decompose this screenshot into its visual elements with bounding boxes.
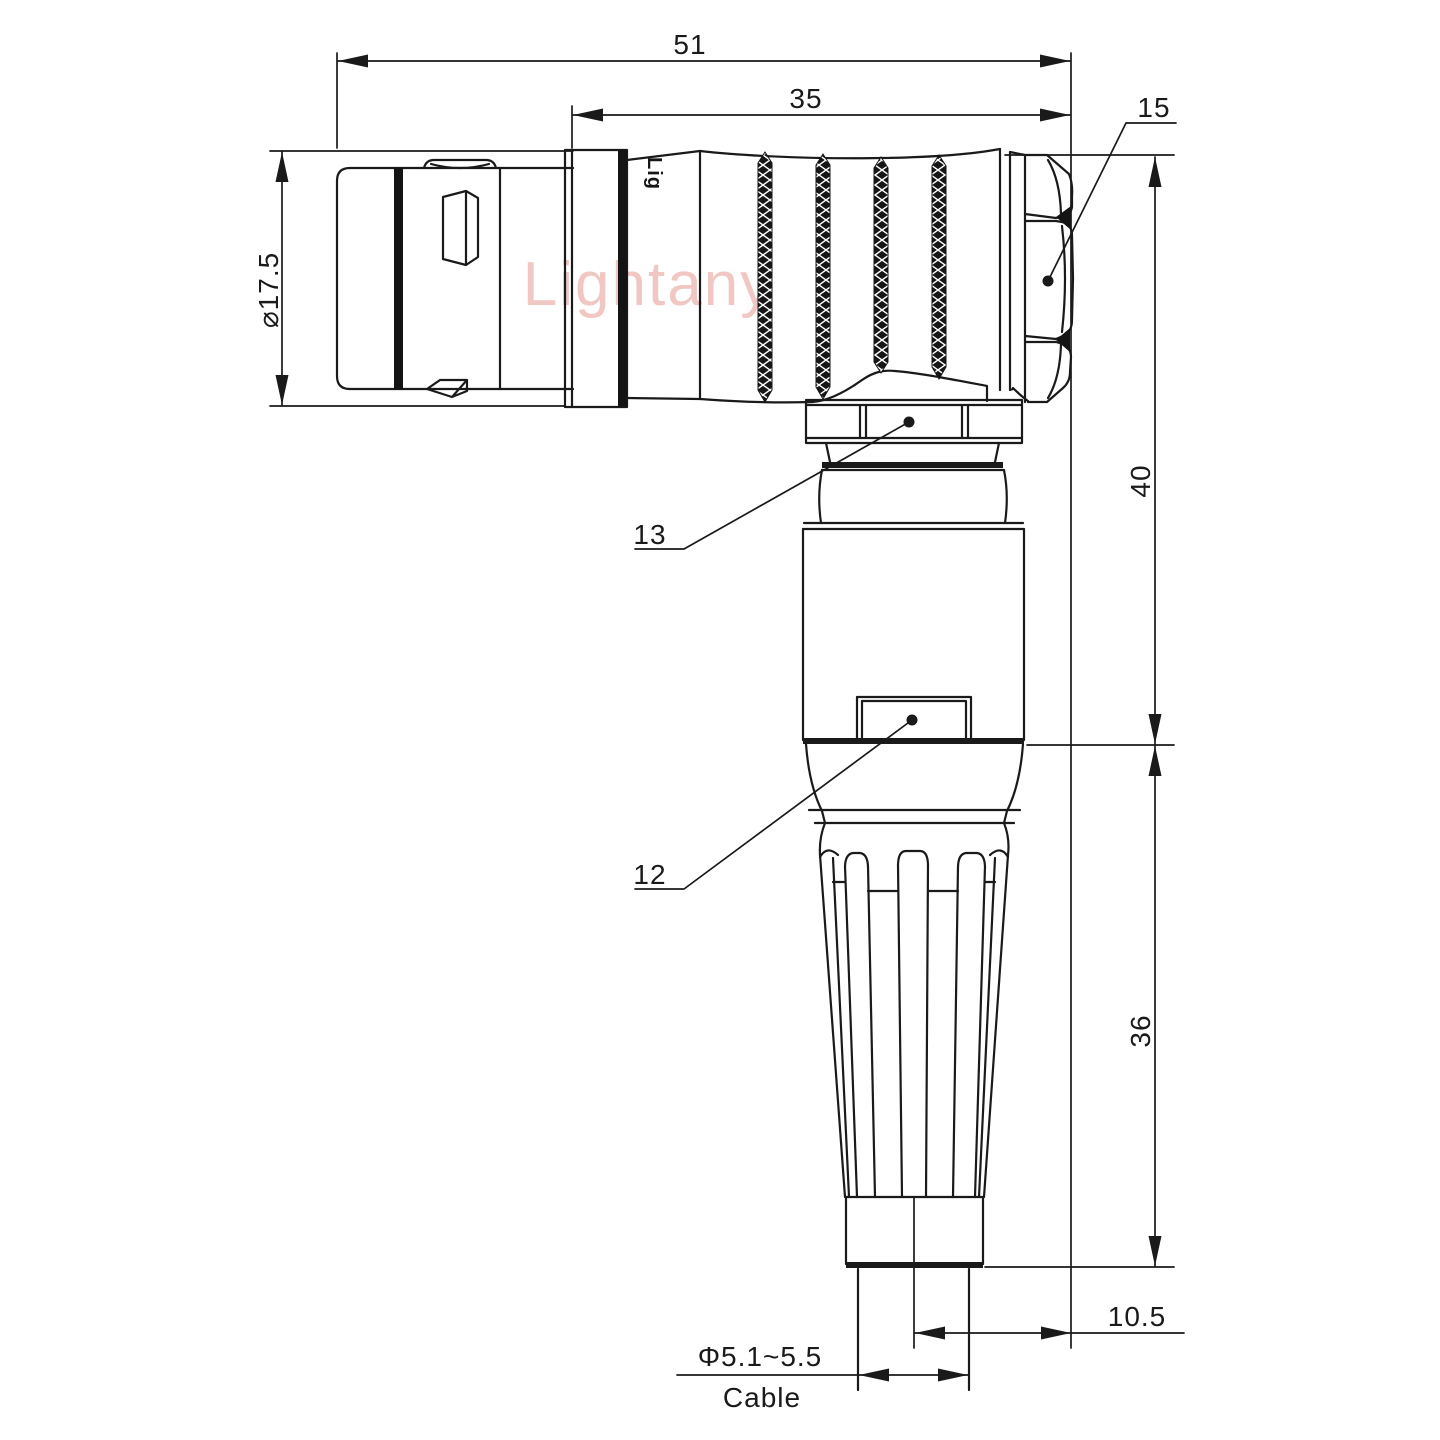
leader-15: 15 bbox=[1043, 92, 1177, 287]
nose-stripe bbox=[394, 168, 403, 389]
dim-height-upper: 40 bbox=[1005, 155, 1174, 1266]
ref-15-label: 15 bbox=[1137, 92, 1170, 123]
knurl-band-4 bbox=[932, 155, 946, 379]
dim-17-5-label: ⌀17.5 bbox=[253, 252, 284, 328]
ref-12-label: 12 bbox=[633, 859, 666, 890]
dim-overall-length: 51 bbox=[337, 29, 1070, 148]
dim-40-label: 40 bbox=[1125, 464, 1156, 497]
strain-relief-boot bbox=[806, 744, 1023, 1197]
neck-and-ring bbox=[803, 443, 1024, 529]
elbow-housing bbox=[803, 529, 1024, 741]
dim-10-5-label: 10.5 bbox=[1108, 1301, 1167, 1332]
body-engraving: Lig bbox=[643, 157, 665, 190]
dim-51-label: 51 bbox=[673, 29, 706, 60]
knurl-band-1 bbox=[758, 152, 772, 402]
dim-cable-diameter: Φ5.1~5.5 Cable bbox=[677, 1341, 968, 1413]
dim-height-lower: 36 bbox=[985, 746, 1174, 1267]
drawing-canvas: Lightany Lig bbox=[0, 0, 1440, 1440]
dim-35-label: 35 bbox=[789, 83, 822, 114]
dim-36-label: 36 bbox=[1125, 1014, 1156, 1047]
cable-label: Cable bbox=[723, 1382, 801, 1413]
knurl-band-2 bbox=[816, 154, 830, 399]
dim-grip-length: 35 bbox=[572, 83, 1070, 148]
ref-13-label: 13 bbox=[633, 519, 666, 550]
dim-exit-offset: 10.5 bbox=[914, 1197, 1184, 1348]
watermark-text: Lightany bbox=[523, 250, 773, 319]
hex-back-nut bbox=[1013, 155, 1073, 402]
connector-dimension-drawing: Lightany Lig bbox=[0, 0, 1440, 1440]
knurl-band-3 bbox=[874, 157, 888, 373]
bayonet-key bbox=[443, 191, 478, 265]
dim-cable-dia-label: Φ5.1~5.5 bbox=[698, 1341, 823, 1372]
